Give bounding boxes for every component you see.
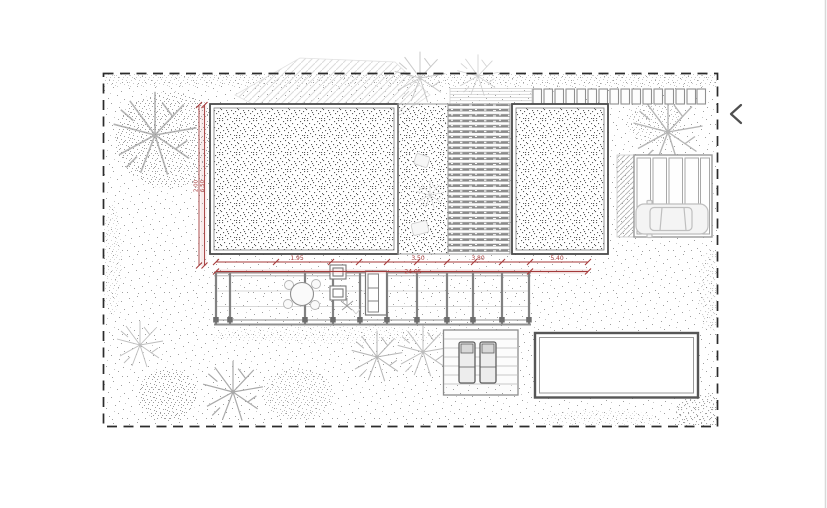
tree-mass <box>138 369 198 421</box>
planted-bed-right <box>512 104 608 254</box>
dimension-label: 5.40 <box>550 255 564 262</box>
dimension-label: 2.00 <box>194 179 200 192</box>
swimming-pool <box>535 333 698 398</box>
planted-bed-left <box>210 104 398 254</box>
wood-deck <box>448 104 510 254</box>
site-plan-drawing: 2.00 6.50 1.95 3.50 3.80 5.40 24.05 <box>0 0 827 508</box>
dimension-label-total: 24.05 <box>404 269 421 276</box>
dimension-label: 3.80 <box>471 255 485 262</box>
tree-mass <box>115 92 225 188</box>
lounge-deck <box>444 330 519 395</box>
striped-path <box>450 89 532 106</box>
sofa <box>366 271 387 315</box>
screenshot-root: 2.00 6.50 1.95 3.50 3.80 5.40 24.05 <box>0 0 827 508</box>
sunbed <box>480 342 496 383</box>
dimension-label: 3.50 <box>411 255 425 262</box>
carport-hatch <box>617 155 634 237</box>
carport <box>617 155 712 238</box>
gravel-strip <box>398 104 448 254</box>
dimension-label: 1.95 <box>290 255 304 262</box>
car <box>636 201 708 238</box>
dimension-label: 6.50 <box>200 179 206 192</box>
tree-mass <box>262 368 334 420</box>
sunbed <box>459 342 475 383</box>
